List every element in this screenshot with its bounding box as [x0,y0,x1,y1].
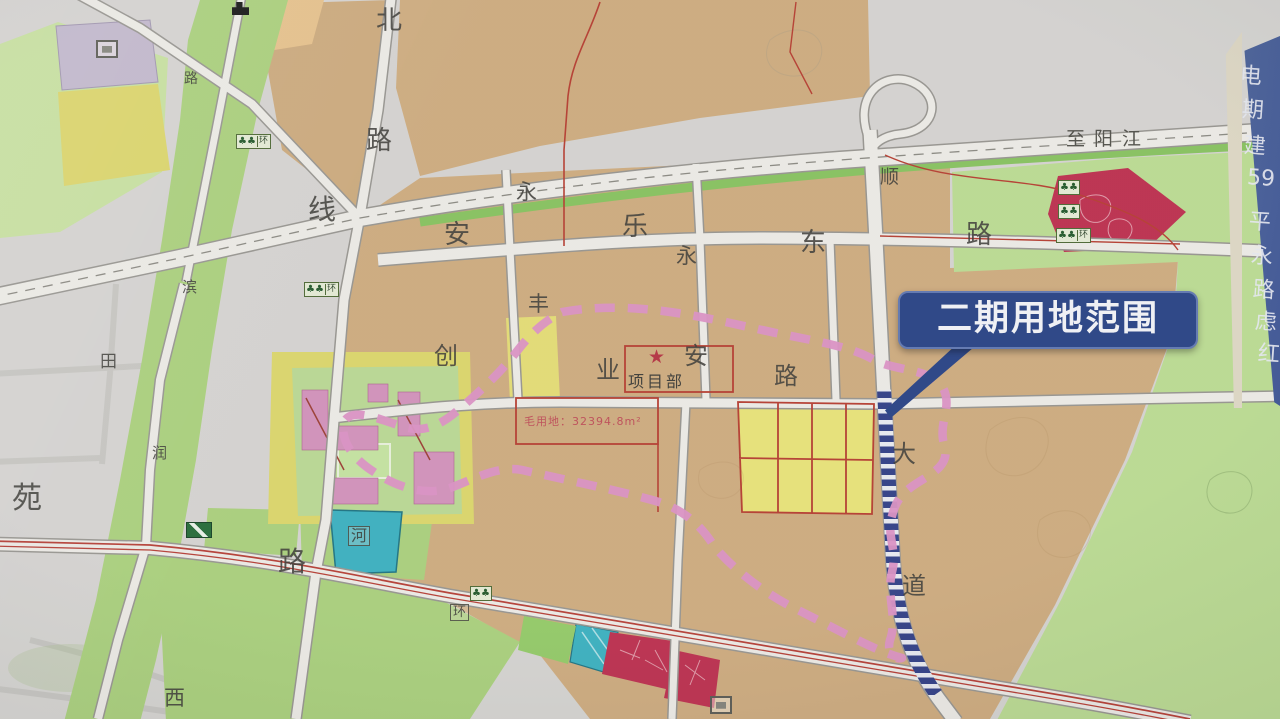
signboard-edge-text: 电期建59平永路虑红 [0,0,1280,719]
signboard-edge-char: 红 [1257,335,1280,368]
signboard-edge-char: 电 [1239,57,1263,90]
signboard-edge-char: 59 [1246,165,1276,192]
signboard-edge-char: 虑 [1254,303,1278,336]
signboard-edge-char: 期 [1241,91,1265,124]
signboard-edge-char: 建 [1243,127,1267,160]
signboard-edge-char: 永 [1250,237,1274,270]
signboard-edge-char: 路 [1252,271,1276,304]
planning-map-photo: ★ 项目部 毛用地：32394.8m² 至阳江 北路线安乐东路永永顺丰创业安路大… [0,0,1280,719]
signboard-edge-char: 平 [1248,203,1272,236]
